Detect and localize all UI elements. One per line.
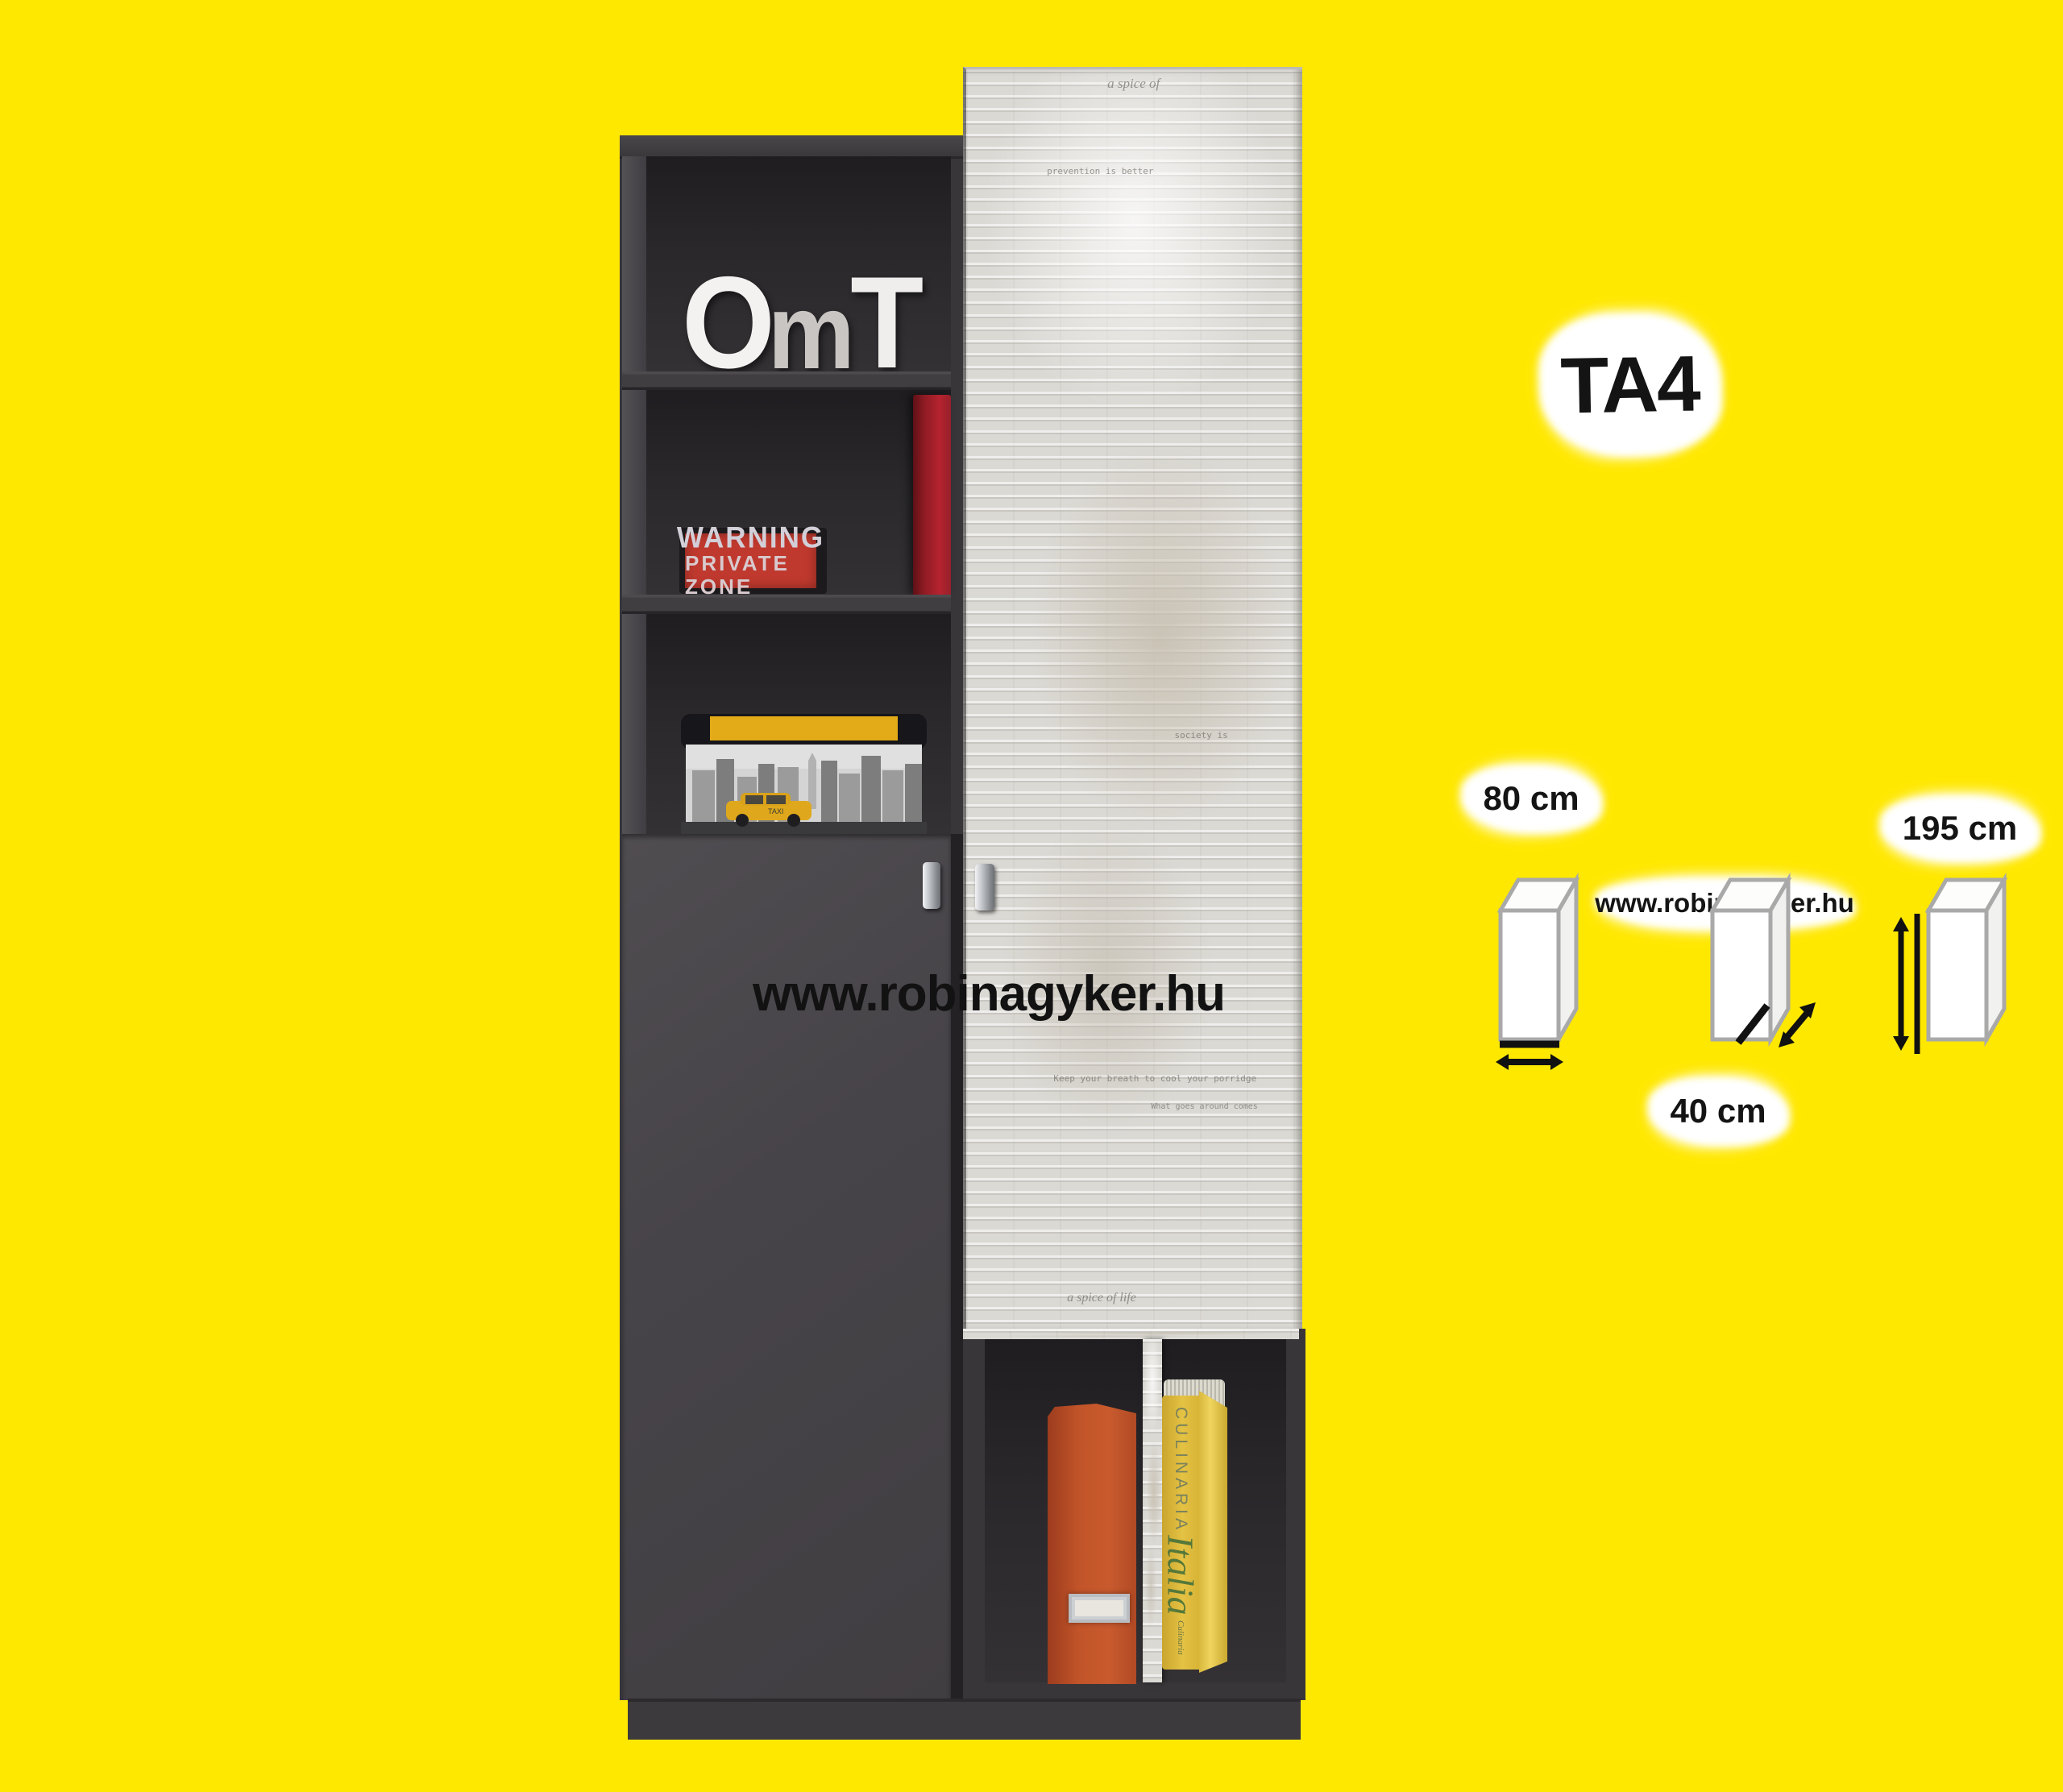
left-door (622, 834, 951, 1700)
product-code-patch: TA4 (1550, 319, 1710, 449)
yellow-book-cover-side (1199, 1391, 1227, 1673)
product-code: TA4 (1560, 338, 1700, 431)
folder-label (1075, 1600, 1123, 1616)
depth-cube-icon (1708, 872, 1837, 1075)
decor-letter-m: m (768, 292, 852, 372)
height-cube-icon (1891, 872, 2012, 1075)
yellow-book-spine-top: CULINARIA (1171, 1407, 1190, 1533)
shelf-board-2 (622, 595, 951, 614)
shelf-board-1 (622, 371, 951, 390)
right-door-newsprint: a spice of prevention is better Keep you… (963, 67, 1302, 1331)
dim-width-patch: 80 cm (1473, 772, 1589, 825)
decor-letters: O m T (682, 271, 921, 372)
warning-sign-line2: PRIVATE ZONE (685, 552, 816, 598)
left-unit-side-wall (622, 156, 646, 834)
yellow-book-spine: CULINARIA Italia Culinaria (1162, 1396, 1199, 1670)
newsprint-phrase: What goes around comes (1151, 1102, 1257, 1111)
dim-depth-patch: 40 cm (1660, 1085, 1776, 1138)
product-image-canvas: O m T WARNING PRIVATE ZONE (0, 0, 2063, 1792)
yellow-book-spine-footer: Culinaria (1176, 1620, 1185, 1655)
width-cube-icon (1496, 872, 1584, 1075)
newsprint-phrase: Keep your breath to cool your porridge (1053, 1073, 1256, 1084)
storage-box: TAXI (681, 714, 927, 834)
orange-folder (1048, 1404, 1136, 1684)
left-door-handle (923, 862, 940, 909)
folder-label-holder (1069, 1594, 1130, 1623)
dim-height-label: 195 cm (1903, 809, 2017, 848)
dim-depth-label: 40 cm (1670, 1092, 1766, 1130)
newsprint-phrase: society is (1175, 730, 1228, 740)
warning-sign-line1: WARNING (677, 523, 824, 553)
left-unit-top-board (620, 135, 963, 159)
newsprint-phrase: a spice of (1107, 76, 1160, 92)
cubby-divider (1143, 1339, 1162, 1682)
yellow-book-spine-title: Italia (1160, 1535, 1202, 1616)
taxi-label-slot: TAXI (768, 807, 783, 815)
plinth (628, 1699, 1301, 1740)
decor-letter-o: O (682, 273, 772, 372)
decor-letter-t: T (850, 273, 920, 372)
newsprint-phrase: a spice of life (1067, 1291, 1136, 1305)
dim-width-label: 80 cm (1483, 779, 1579, 818)
watermark-on-photo: www.robinagyker.hu (753, 965, 1225, 1023)
door-gap-shadow (951, 834, 963, 1700)
red-book (913, 395, 951, 595)
right-door-handle (975, 864, 994, 911)
dim-height-patch: 195 cm (1892, 803, 2028, 854)
newsprint-phrase: prevention is better (1047, 166, 1153, 176)
cubby-top-strip (963, 1329, 1299, 1339)
storage-box-print: TAXI (681, 714, 927, 834)
warning-sign: WARNING PRIVATE ZONE (679, 528, 827, 594)
